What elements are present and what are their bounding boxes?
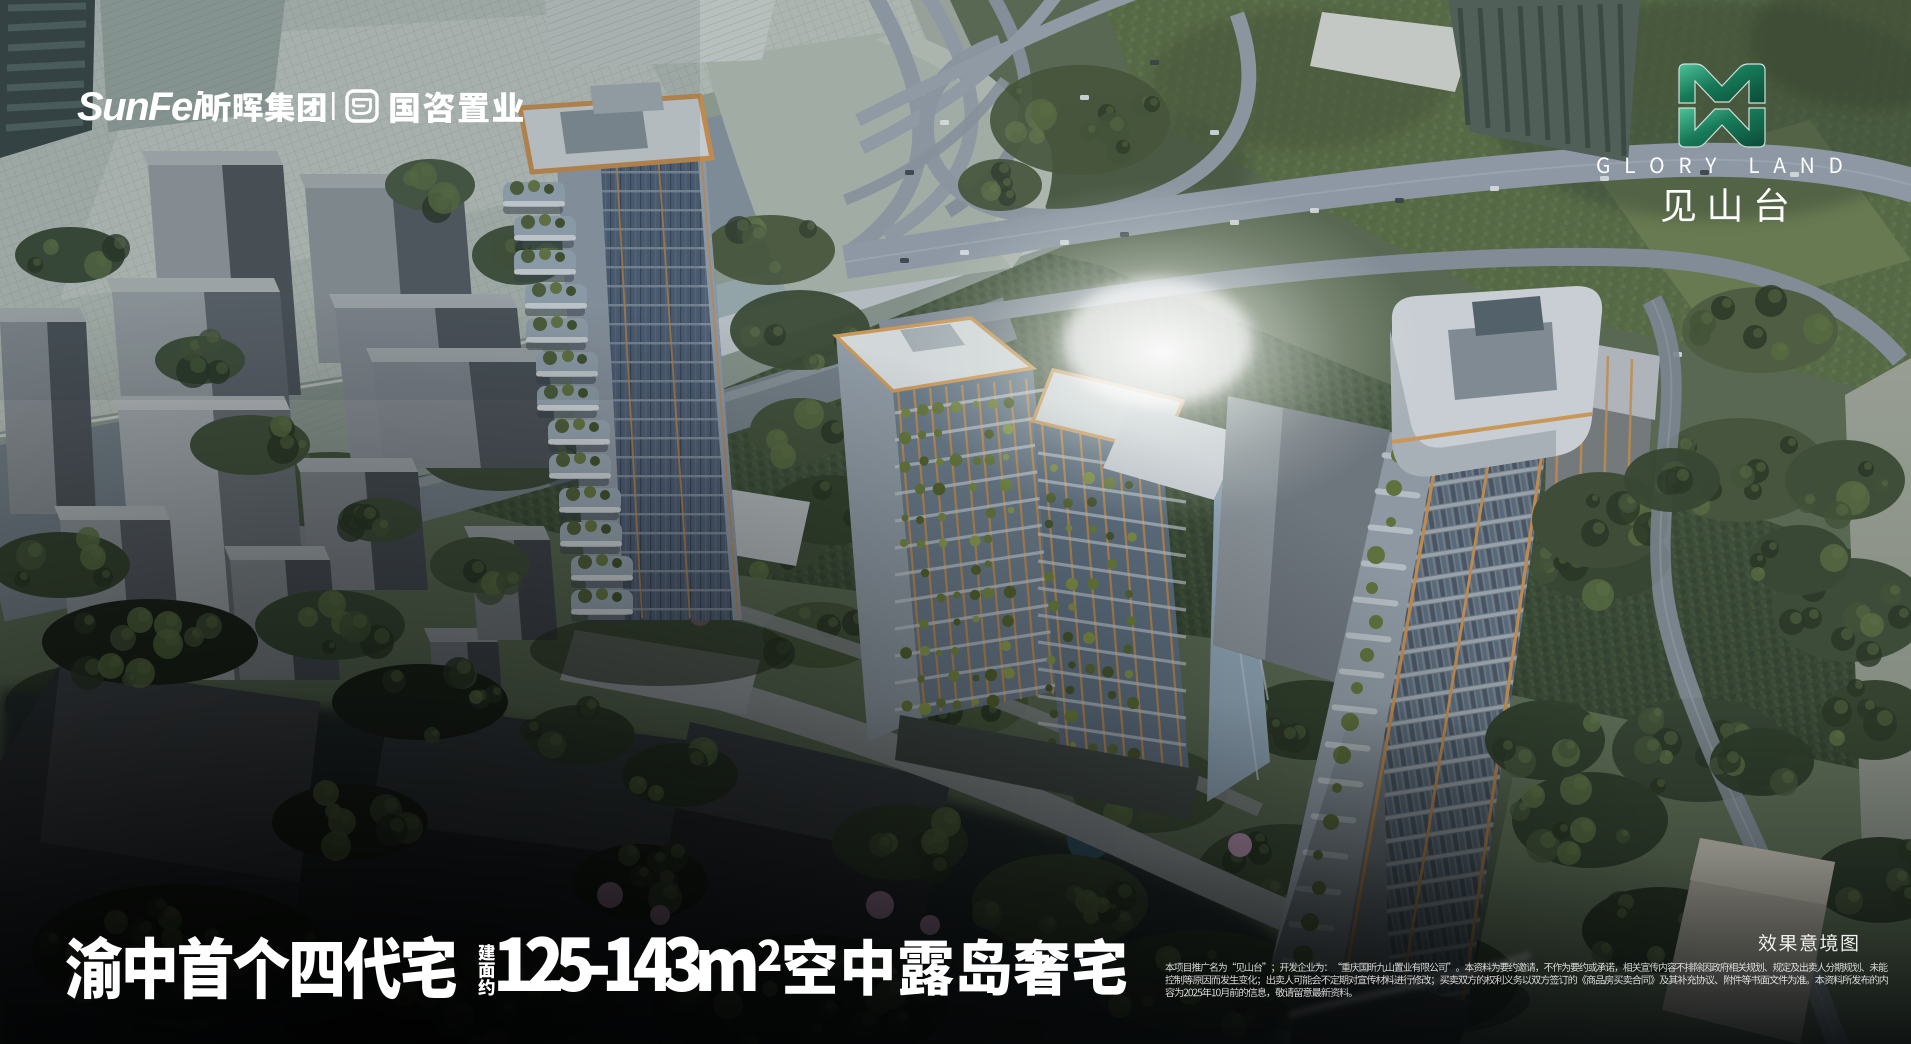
svg-text:SunFei: SunFei [77, 85, 204, 129]
